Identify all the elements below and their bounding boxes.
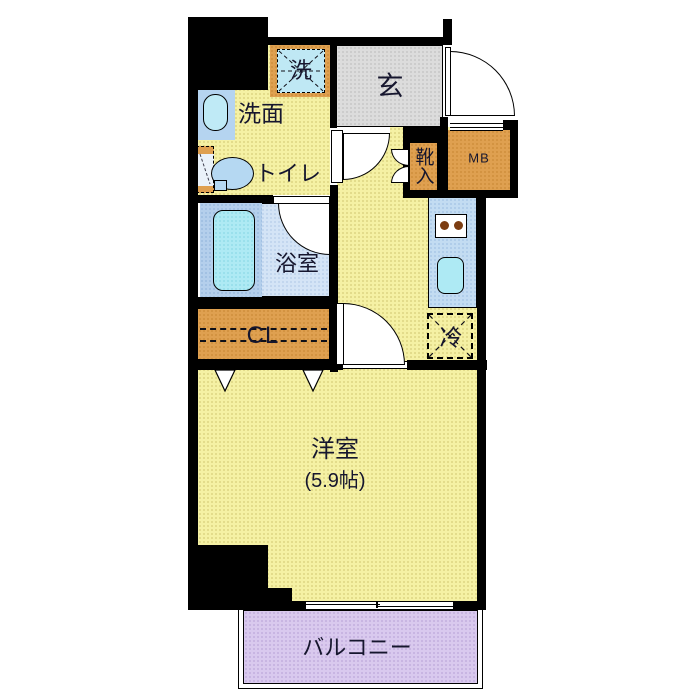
main-room-label: 洋室 [311,438,359,462]
wall [188,90,198,545]
floor-plan: 洗 玄 洗面 トイレ 靴入 MB 浴室 CL 冷 洋室 (5.9帖) バルコニー [0,0,700,700]
kitchen-sink [437,257,464,294]
shoe-box-label: 靴入 [414,147,433,185]
wall [330,45,337,128]
wall-step [188,545,268,610]
bathtub [213,210,255,291]
window-center-tick [376,602,378,608]
toilet-label: トイレ [255,163,321,185]
wall [510,120,518,192]
washroom-label: 洗面 [238,103,284,126]
bathroom-label: 浴室 [275,253,319,275]
refrigerator-label: 冷 [440,327,463,350]
wall [188,195,273,203]
stove-burner [440,221,449,230]
washer-label: 洗 [290,60,312,82]
entrance-window [450,123,503,131]
wall [292,601,306,610]
toilet-seat-box [214,180,227,191]
window-pane-line [377,606,453,607]
wall [268,37,452,45]
entrance-label: 玄 [377,74,404,101]
wall [188,17,268,90]
balcony-label: バルコニー [302,637,412,659]
window-pane-line [306,604,380,605]
wall [188,360,343,370]
entrance-door-arc [450,51,515,116]
wall-step [268,588,292,610]
washbasin-sink [203,94,228,131]
hall-door-leaf [331,130,343,183]
wall [188,297,330,308]
wall [503,120,518,130]
wall [440,117,448,192]
wall [403,190,518,198]
wall [407,360,487,370]
window-line [450,127,503,128]
wall [477,193,486,608]
main-room-size-label: (5.9帖) [304,471,365,491]
wall [450,601,486,610]
closet-label: CL [247,324,280,348]
wall [443,19,452,45]
meter-box-label: MB [468,152,490,165]
balcony-sliding-window [306,601,453,610]
stove-burner [454,221,463,230]
